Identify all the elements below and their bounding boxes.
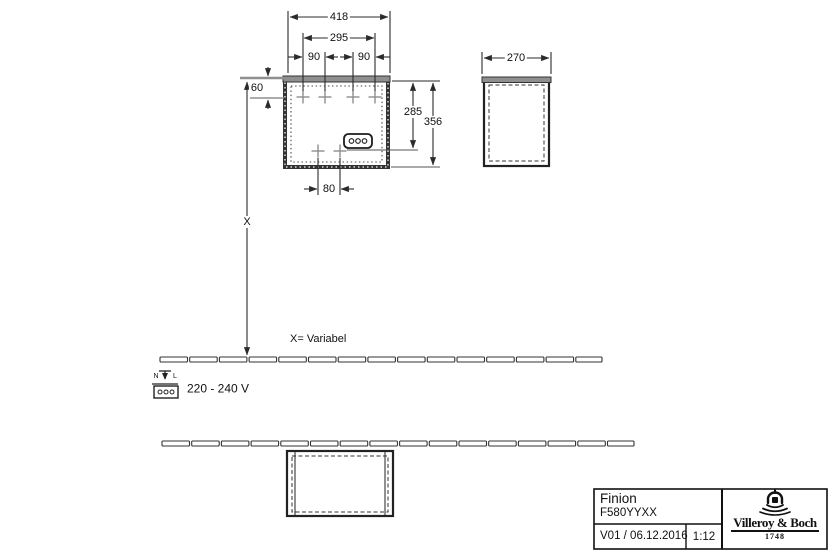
neutral-wire-label: N <box>153 373 158 381</box>
drawing-scale: 1:12 <box>693 531 715 543</box>
side-view <box>482 77 551 166</box>
brand-name: Villeroy & Boch <box>731 516 819 532</box>
villeroy-boch-crest-icon <box>755 489 795 516</box>
line-wire-label: L <box>173 373 177 381</box>
front-view <box>283 76 390 167</box>
drawing-linework <box>0 0 828 551</box>
voltage-label: 220 - 240 V <box>185 382 251 395</box>
floor-line-upper <box>160 357 602 362</box>
dimension-socket-height: 285 <box>402 106 424 118</box>
dimension-variable-height: X <box>241 216 252 228</box>
dimension-hole-spacing-left: 90 <box>306 51 322 63</box>
villeroy-boch-logo: Villeroy & Boch 1748 <box>723 489 827 549</box>
dimension-bottom-hole-spacing: 80 <box>321 183 337 195</box>
article-number: F580YYXX <box>600 507 657 519</box>
product-line-name: Finion <box>600 491 637 506</box>
plan-view <box>287 451 393 516</box>
dimension-depth: 270 <box>505 52 527 64</box>
dimension-overall-height: 356 <box>422 116 444 128</box>
variable-height-note: X= Variabel <box>288 333 348 345</box>
power-socket-icon <box>344 134 372 148</box>
dimension-overall-width: 418 <box>328 11 350 23</box>
technical-drawing-page: 418 295 90 90 60 285 356 270 80 X X= Var… <box>0 0 828 551</box>
dimension-top-offset: 60 <box>249 82 265 94</box>
wall-line-lower <box>162 441 634 446</box>
side-top-panel <box>482 77 551 83</box>
version-date: V01 / 06.12.2016 <box>600 530 688 542</box>
dimension-hole-spacing-right: 90 <box>356 51 372 63</box>
brand-year: 1748 <box>765 532 785 542</box>
dimension-inner-width: 295 <box>328 32 350 44</box>
front-top-panel <box>283 76 390 82</box>
